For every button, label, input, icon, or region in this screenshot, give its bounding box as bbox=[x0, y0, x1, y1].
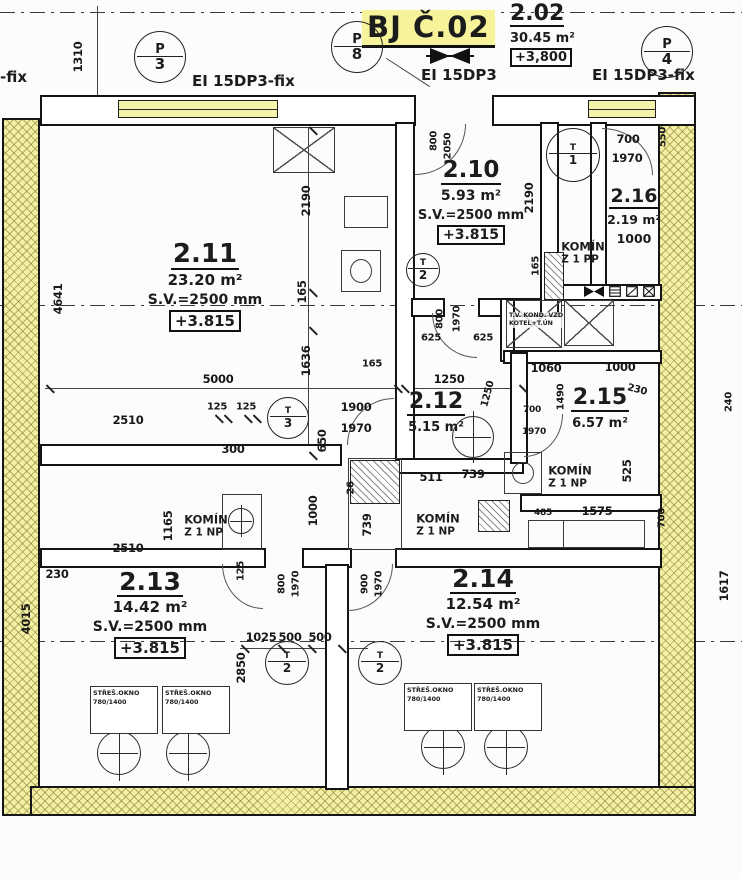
chimney-label: KOMÍNZ 1 NP bbox=[184, 512, 228, 540]
marker-number: 4 bbox=[662, 52, 672, 67]
dimension-label: 125 bbox=[236, 402, 256, 413]
dimension-label: 1490 bbox=[556, 384, 567, 411]
dimension-label: 2190 bbox=[299, 186, 313, 217]
dimension-tick bbox=[309, 288, 318, 297]
dimension-label: 1250 bbox=[434, 372, 465, 386]
marker-letter: T bbox=[377, 652, 383, 661]
fixture-marker-T1: T1 bbox=[546, 128, 600, 182]
fixture-marker-T2: T2 bbox=[358, 641, 402, 685]
dimension-label: 230 bbox=[45, 567, 68, 581]
roof-window-size: 780/1400 bbox=[407, 695, 470, 704]
dimension-tick bbox=[215, 414, 224, 423]
dimension-label: 165 bbox=[531, 256, 542, 276]
marker-number: 2 bbox=[376, 662, 384, 674]
marker-number: 3 bbox=[284, 417, 292, 429]
dimension-label: 230 bbox=[626, 382, 648, 398]
dimension-label: 1000 bbox=[306, 496, 320, 527]
roof-window-label: STŘEŠ.OKNO bbox=[93, 689, 156, 698]
roof-window-label: STŘEŠ.OKNO bbox=[477, 686, 540, 695]
dimension-label: 1060 bbox=[531, 361, 562, 375]
dimension-label: 700 bbox=[657, 508, 668, 528]
dimension-label: 2190 bbox=[522, 183, 536, 214]
chimney-label: KOMÍNZ 1 NP bbox=[548, 463, 592, 491]
chimney-label-line2: Z 1 NP bbox=[184, 527, 228, 540]
chimney-label-line1: KOMÍN bbox=[416, 511, 460, 525]
dimension-label: 1970 bbox=[522, 427, 546, 437]
dimension-label: 700 bbox=[523, 405, 541, 415]
marker-letter: P bbox=[352, 33, 362, 46]
dimension-label: 1970 bbox=[341, 421, 372, 435]
chimney-label-line2: Z 1 NP bbox=[416, 526, 460, 539]
roof-window-label: STŘEŠ.OKNO bbox=[407, 686, 470, 695]
grid-marker-P8: P8 bbox=[331, 21, 383, 73]
roof-window-box: STŘEŠ.OKNO780/1400 bbox=[404, 683, 472, 731]
dimension-label: 1575 bbox=[582, 504, 613, 518]
roof-window-size: 780/1400 bbox=[93, 698, 156, 707]
marker-letter: T bbox=[420, 259, 426, 268]
dimension-label: 739 bbox=[360, 513, 374, 536]
dimension-label: 125 bbox=[207, 402, 227, 413]
marker-letter: T bbox=[285, 407, 291, 416]
lamp-symbol-icon bbox=[421, 725, 465, 769]
annotation-layer: 1310800205070019705502190219016516516366… bbox=[0, 0, 742, 879]
dimension-label: 1310 bbox=[71, 42, 85, 73]
marker-number: 3 bbox=[155, 57, 165, 72]
chimney-label: KOMÍNZ 1 NP bbox=[416, 511, 460, 539]
fixture-marker-T2: T2 bbox=[265, 641, 309, 685]
dimension-tick bbox=[309, 326, 318, 335]
dimension-label: 2510 bbox=[113, 541, 144, 555]
dimension-tick bbox=[224, 414, 233, 423]
dimension-label: 2050 bbox=[443, 133, 454, 160]
dimension-tick bbox=[46, 384, 55, 393]
dimension-label: 300 bbox=[221, 442, 244, 456]
roof-window-size: 780/1400 bbox=[165, 698, 228, 707]
chimney-label-line2: Z 1 NP bbox=[548, 478, 592, 491]
fixture-marker-T3: T3 bbox=[267, 397, 309, 439]
grid-marker-P3: P3 bbox=[134, 31, 186, 83]
dimension-label: 1000 bbox=[605, 360, 636, 374]
dimension-label: 4641 bbox=[51, 284, 65, 315]
dimension-label: 1636 bbox=[299, 346, 313, 377]
marker-number: 2 bbox=[419, 269, 427, 281]
dimension-label: 165 bbox=[295, 280, 309, 303]
dimension-label: 2850 bbox=[234, 653, 248, 684]
dimension-label: 650 bbox=[315, 429, 329, 452]
dimension-label: 240 bbox=[724, 392, 735, 412]
dimension-label: 125 bbox=[236, 561, 247, 581]
dimension-tick bbox=[309, 451, 318, 460]
lamp-symbol-icon bbox=[452, 416, 494, 458]
lamp-symbol-icon bbox=[97, 731, 141, 775]
marker-letter: P bbox=[155, 43, 165, 56]
dimension-label: 485 bbox=[534, 508, 552, 518]
dimension-label: 800 bbox=[435, 309, 446, 329]
lamp-symbol-icon bbox=[166, 731, 210, 775]
marker-letter: T bbox=[570, 144, 576, 153]
dimension-tick bbox=[308, 644, 317, 653]
floor-plan-sheet: T.V. KOND. VZD KOTEL+T.ÚN BJ Č.02 2.02 3… bbox=[0, 0, 742, 879]
roof-window-size: 780/1400 bbox=[477, 695, 540, 704]
marker-number: 1 bbox=[569, 154, 577, 166]
chimney-label-line1: KOMÍN bbox=[184, 512, 228, 526]
dimension-label: 511 bbox=[419, 470, 442, 484]
dimension-label: 525 bbox=[620, 459, 634, 482]
chimney-label-line1: KOMÍN bbox=[561, 239, 605, 253]
fixture-marker-T2: T2 bbox=[406, 253, 440, 287]
chimney-label-line1: KOMÍN bbox=[548, 463, 592, 477]
dimension-label: 739 bbox=[461, 467, 484, 481]
dimension-tick bbox=[244, 414, 253, 423]
roof-window-label: STŘEŠ.OKNO bbox=[165, 689, 228, 698]
dimension-tick bbox=[338, 644, 347, 653]
dimension-label: 1970 bbox=[612, 151, 643, 165]
dimension-label: 4015 bbox=[19, 604, 33, 635]
dimension-tick bbox=[519, 384, 528, 393]
marker-letter: P bbox=[662, 38, 672, 51]
dimension-label: 550 bbox=[658, 127, 669, 147]
dimension-label: 700 bbox=[616, 132, 639, 146]
dimension-label: 625 bbox=[421, 333, 441, 344]
roof-window-box: STŘEŠ.OKNO780/1400 bbox=[90, 686, 158, 734]
marker-letter: T bbox=[284, 652, 290, 661]
marker-number: 2 bbox=[283, 662, 291, 674]
dimension-label: 1970 bbox=[374, 571, 385, 598]
dimension-label: 1900 bbox=[341, 400, 372, 414]
dimension-tick bbox=[253, 414, 262, 423]
dimension-label: 1250 bbox=[479, 380, 497, 409]
dimension-label: 1165 bbox=[161, 511, 175, 542]
dimension-tick bbox=[309, 126, 318, 135]
dimension-label: 5000 bbox=[203, 372, 234, 386]
chimney-label: KOMÍNZ 1 PP bbox=[561, 239, 605, 267]
dimension-label: 1970 bbox=[452, 306, 463, 333]
dimension-label: 800 bbox=[429, 131, 440, 151]
chimney-label-line2: Z 1 PP bbox=[561, 254, 605, 267]
dimension-label: 1025 bbox=[246, 630, 277, 644]
roof-window-box: STŘEŠ.OKNO780/1400 bbox=[162, 686, 230, 734]
dimension-label: 2510 bbox=[113, 413, 144, 427]
dimension-label: 900 bbox=[360, 574, 371, 594]
dimension-label: 1970 bbox=[291, 571, 302, 598]
dimension-label: 165 bbox=[362, 359, 382, 370]
roof-window-box: STŘEŠ.OKNO780/1400 bbox=[474, 683, 542, 731]
dimension-label: 500 bbox=[308, 630, 331, 644]
dimension-label: 625 bbox=[473, 333, 493, 344]
dimension-label: 800 bbox=[277, 574, 288, 594]
marker-number: 8 bbox=[352, 47, 362, 62]
lamp-symbol-icon bbox=[484, 725, 528, 769]
grid-marker-P4: P4 bbox=[641, 26, 693, 78]
dimension-label: 26 bbox=[346, 481, 357, 494]
dimension-label: 1617 bbox=[717, 571, 731, 602]
